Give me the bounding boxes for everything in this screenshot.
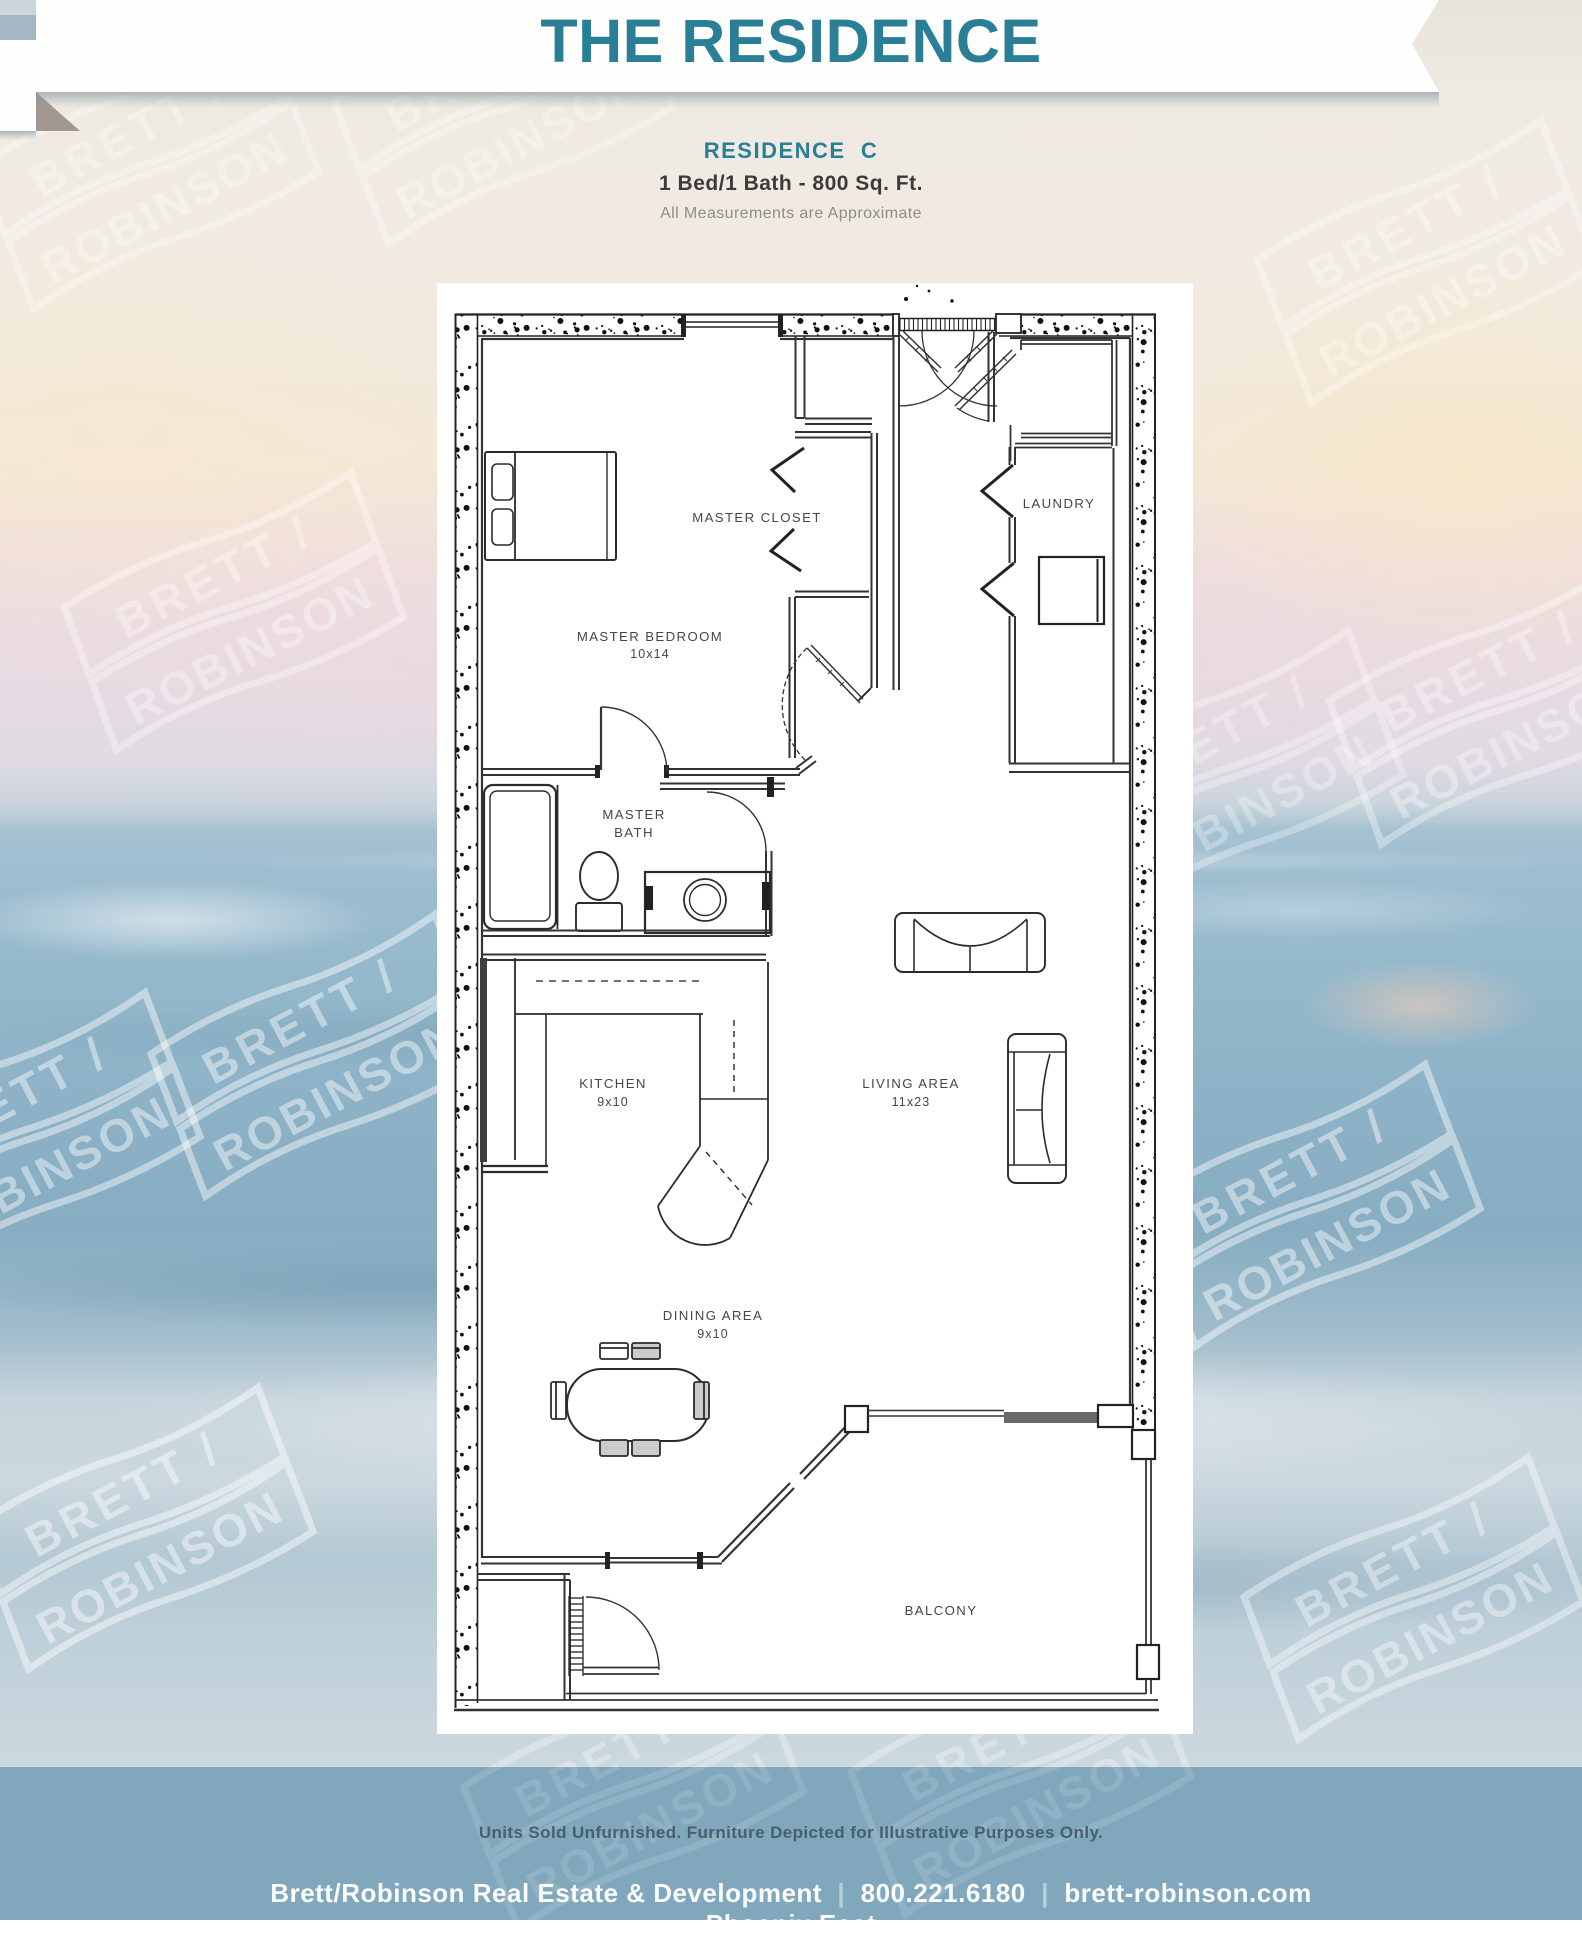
- svg-text:MASTER BEDROOM: MASTER BEDROOM: [577, 629, 723, 644]
- svg-text:MASTER: MASTER: [602, 807, 665, 822]
- svg-text:BALCONY: BALCONY: [905, 1603, 978, 1618]
- svg-text:MASTER CLOSET: MASTER CLOSET: [692, 510, 822, 525]
- svg-text:9x10: 9x10: [597, 1095, 629, 1109]
- svg-text:10x14: 10x14: [630, 647, 670, 661]
- svg-text:DINING AREA: DINING AREA: [663, 1308, 763, 1323]
- svg-text:LIVING AREA: LIVING AREA: [862, 1076, 960, 1091]
- svg-text:KITCHEN: KITCHEN: [579, 1076, 647, 1091]
- svg-text:LAUNDRY: LAUNDRY: [1023, 496, 1096, 511]
- svg-text:11x23: 11x23: [892, 1095, 931, 1109]
- svg-text:9x10: 9x10: [697, 1327, 729, 1341]
- svg-text:BATH: BATH: [614, 825, 654, 840]
